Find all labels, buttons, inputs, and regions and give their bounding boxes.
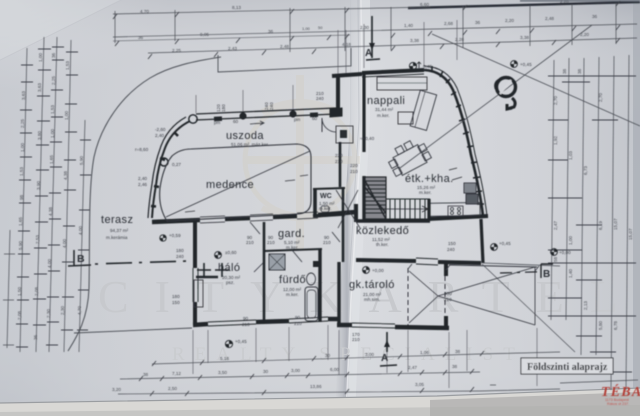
svg-text:3,38: 3,38 bbox=[520, 35, 529, 40]
svg-text:6,73: 6,73 bbox=[583, 166, 588, 175]
svg-text:2,13: 2,13 bbox=[583, 301, 588, 310]
svg-text:B: B bbox=[543, 269, 550, 280]
svg-text:1,65: 1,65 bbox=[18, 217, 23, 226]
svg-text:2,25: 2,25 bbox=[172, 48, 181, 53]
svg-text:1,00: 1,00 bbox=[20, 143, 25, 152]
svg-text:4,00: 4,00 bbox=[47, 259, 52, 268]
svg-text:1,53: 1,53 bbox=[50, 105, 55, 114]
svg-text:4,38: 4,38 bbox=[63, 171, 68, 180]
svg-text:gk.tároló: gk.tároló bbox=[349, 279, 395, 291]
svg-text:210: 210 bbox=[294, 321, 302, 326]
svg-text:4,70: 4,70 bbox=[77, 306, 82, 315]
svg-text:r=8,60: r=8,60 bbox=[135, 147, 149, 152]
svg-text:nappali: nappali bbox=[367, 95, 405, 107]
svg-text:30: 30 bbox=[263, 369, 269, 374]
svg-text:4,00: 4,00 bbox=[78, 226, 83, 235]
svg-text:medence: medence bbox=[206, 179, 254, 191]
svg-text:3,38: 3,38 bbox=[410, 38, 419, 43]
svg-text:50: 50 bbox=[318, 25, 323, 30]
svg-text:13,86: 13,86 bbox=[310, 384, 322, 389]
svg-text:240: 240 bbox=[269, 102, 274, 110]
svg-text:3,00: 3,00 bbox=[291, 368, 300, 373]
svg-text:38: 38 bbox=[577, 68, 582, 74]
svg-text:150: 150 bbox=[448, 241, 456, 246]
svg-text:1,00: 1,00 bbox=[38, 53, 43, 62]
svg-text:36: 36 bbox=[475, 20, 481, 25]
svg-text:3,90: 3,90 bbox=[36, 181, 41, 190]
svg-text:th.ker.: th.ker. bbox=[376, 242, 389, 247]
svg-text:240: 240 bbox=[447, 247, 455, 252]
svg-text:közlekedő: közlekedő bbox=[356, 225, 409, 237]
svg-text:1,00: 1,00 bbox=[64, 111, 69, 120]
svg-text:3,00: 3,00 bbox=[365, 352, 374, 357]
svg-text:2,47: 2,47 bbox=[408, 365, 417, 370]
svg-text:2,30: 2,30 bbox=[46, 309, 51, 318]
svg-text:2,53: 2,53 bbox=[35, 235, 40, 244]
svg-text:+0,59: +0,59 bbox=[169, 233, 181, 238]
svg-text:1,00: 1,00 bbox=[568, 236, 573, 245]
svg-text:31,44 m²: 31,44 m² bbox=[375, 107, 394, 112]
svg-text:98: 98 bbox=[19, 194, 24, 200]
svg-text:A: A bbox=[365, 48, 372, 59]
svg-text:36: 36 bbox=[138, 35, 144, 40]
svg-text:36: 36 bbox=[51, 52, 56, 58]
svg-text:210: 210 bbox=[323, 240, 331, 245]
svg-text:220: 220 bbox=[350, 163, 358, 168]
svg-text:300: 300 bbox=[444, 291, 452, 296]
svg-text:pm: pm bbox=[214, 120, 221, 125]
svg-text:38: 38 bbox=[455, 349, 461, 354]
svg-text:150: 150 bbox=[172, 300, 180, 305]
svg-text:psz.: psz. bbox=[226, 280, 234, 285]
svg-text:1,00: 1,00 bbox=[302, 26, 311, 31]
svg-text:1,00: 1,00 bbox=[50, 129, 55, 138]
svg-text:180: 180 bbox=[172, 294, 180, 299]
svg-text:210: 210 bbox=[352, 337, 360, 342]
svg-text:2,70: 2,70 bbox=[553, 96, 558, 105]
svg-text:2,08: 2,08 bbox=[34, 287, 39, 296]
svg-text:210: 210 bbox=[242, 322, 250, 327]
svg-text:Rákos út 237.: Rákos út 237. bbox=[607, 402, 629, 406]
svg-text:A: A bbox=[381, 353, 388, 364]
svg-text:0,27: 0,27 bbox=[172, 162, 181, 167]
svg-text:gard.: gard. bbox=[278, 228, 305, 240]
svg-text:1,50: 1,50 bbox=[17, 287, 22, 296]
svg-text:30: 30 bbox=[325, 353, 331, 358]
svg-text:WC: WC bbox=[320, 193, 332, 200]
svg-text:pin: pin bbox=[294, 117, 301, 122]
svg-text:38: 38 bbox=[562, 68, 567, 74]
svg-text:1,65: 1,65 bbox=[49, 155, 54, 164]
svg-text:+0,00: +0,00 bbox=[372, 268, 384, 273]
svg-text:4,18: 4,18 bbox=[342, 42, 351, 47]
svg-text:7,12: 7,12 bbox=[172, 371, 181, 376]
svg-text:3,80: 3,80 bbox=[37, 131, 42, 140]
svg-text:210: 210 bbox=[335, 159, 343, 164]
svg-text:210: 210 bbox=[267, 240, 275, 245]
svg-text:m.kerámia: m.kerámia bbox=[106, 235, 128, 240]
svg-text:≈+0,40: ≈+0,40 bbox=[360, 136, 375, 141]
svg-text:4,00: 4,00 bbox=[62, 239, 67, 248]
svg-text:-2,60: -2,60 bbox=[155, 127, 166, 132]
svg-text:Földszinti alaprajz: Földszinti alaprajz bbox=[527, 362, 608, 373]
svg-text:2,25: 2,25 bbox=[20, 119, 25, 128]
svg-text:1,40: 1,40 bbox=[568, 269, 573, 278]
svg-text:4,70: 4,70 bbox=[140, 9, 149, 14]
svg-text:4,38: 4,38 bbox=[48, 207, 53, 216]
svg-text:+0,00: +0,00 bbox=[559, 250, 571, 255]
svg-text:58: 58 bbox=[553, 256, 558, 262]
svg-text:90: 90 bbox=[295, 315, 301, 320]
svg-text:1,53: 1,53 bbox=[65, 61, 70, 70]
svg-text:5,90: 5,90 bbox=[79, 156, 84, 165]
svg-text:3,63: 3,63 bbox=[21, 91, 26, 100]
svg-text:3,63: 3,63 bbox=[37, 83, 42, 92]
svg-text:2,46: 2,46 bbox=[138, 182, 147, 187]
svg-text:2,70: 2,70 bbox=[598, 93, 603, 102]
svg-text:94,37 m²: 94,37 m² bbox=[110, 228, 129, 233]
svg-text:2,08: 2,08 bbox=[17, 311, 22, 320]
svg-text:38: 38 bbox=[452, 364, 458, 369]
svg-text:9,05: 9,05 bbox=[200, 32, 209, 37]
svg-text:36: 36 bbox=[268, 29, 274, 34]
svg-text:2,40: 2,40 bbox=[155, 133, 164, 138]
svg-text:2,20: 2,20 bbox=[505, 18, 514, 23]
svg-text:1,03: 1,03 bbox=[568, 151, 573, 160]
svg-text:5,90: 5,90 bbox=[18, 241, 23, 250]
svg-text:1,92: 1,92 bbox=[553, 136, 558, 145]
svg-text:180: 180 bbox=[221, 104, 226, 112]
svg-text:uszoda: uszoda bbox=[226, 130, 264, 142]
svg-text:90: 90 bbox=[243, 316, 249, 321]
svg-text:+0,45: +0,45 bbox=[499, 241, 511, 246]
svg-text:+0,45: +0,45 bbox=[235, 339, 247, 344]
svg-text:3,50: 3,50 bbox=[218, 370, 227, 375]
svg-text:5,80: 5,80 bbox=[598, 321, 603, 330]
svg-text:2,30: 2,30 bbox=[60, 306, 65, 315]
svg-text:2,48: 2,48 bbox=[545, 16, 554, 21]
svg-text:2,40: 2,40 bbox=[138, 176, 147, 181]
svg-text:±0,60: ±0,60 bbox=[225, 250, 237, 255]
svg-text:15,07: 15,07 bbox=[628, 228, 633, 240]
svg-text:1,53: 1,53 bbox=[19, 167, 24, 176]
svg-text:2,25: 2,25 bbox=[51, 76, 56, 85]
svg-text:15,07: 15,07 bbox=[613, 218, 618, 230]
svg-text:6,19: 6,19 bbox=[598, 221, 603, 230]
svg-text:m.ker.: m.ker. bbox=[286, 245, 299, 250]
svg-text:6,00: 6,00 bbox=[330, 367, 339, 372]
svg-text:210: 210 bbox=[350, 169, 358, 174]
svg-text:3,20: 3,20 bbox=[112, 387, 121, 392]
svg-text:6,78: 6,78 bbox=[613, 321, 618, 330]
svg-text:0,45: 0,45 bbox=[423, 64, 432, 69]
svg-text:5,18: 5,18 bbox=[220, 356, 229, 361]
svg-text:2,28: 2,28 bbox=[455, 37, 464, 42]
svg-text:mh.sim.: mh.sim. bbox=[364, 297, 380, 302]
svg-text:180: 180 bbox=[176, 248, 184, 253]
svg-text:étk.+kha.: étk.+kha. bbox=[405, 173, 454, 185]
svg-text:210: 210 bbox=[444, 297, 452, 302]
svg-text:2,43: 2,43 bbox=[228, 46, 237, 51]
svg-text:+0,45: +0,45 bbox=[520, 62, 532, 67]
svg-text:60: 60 bbox=[312, 116, 318, 121]
svg-text:6,60: 6,60 bbox=[420, 2, 429, 7]
svg-text:240: 240 bbox=[176, 254, 184, 259]
svg-text:38: 38 bbox=[143, 372, 149, 377]
svg-text:240: 240 bbox=[316, 96, 324, 101]
svg-text:m.ker.: m.ker. bbox=[419, 190, 432, 195]
svg-text:B: B bbox=[77, 253, 85, 265]
svg-text:2,30: 2,30 bbox=[360, 25, 369, 30]
svg-text:2,50: 2,50 bbox=[168, 386, 177, 391]
svg-text:fürdő: fürdő bbox=[279, 274, 306, 286]
svg-text:2,68: 2,68 bbox=[444, 21, 453, 26]
svg-text:36: 36 bbox=[592, 14, 598, 19]
svg-text:220: 220 bbox=[335, 153, 343, 158]
svg-text:8,13: 8,13 bbox=[232, 5, 241, 10]
svg-text:1,40: 1,40 bbox=[404, 23, 413, 28]
svg-text:2,47: 2,47 bbox=[553, 221, 558, 230]
svg-text:60: 60 bbox=[233, 119, 239, 124]
svg-text:m.ker.: m.ker. bbox=[377, 113, 390, 118]
svg-text:2,20: 2,20 bbox=[560, 0, 569, 4]
svg-text:3,05: 3,05 bbox=[415, 382, 424, 387]
svg-text:1,06: 1,06 bbox=[420, 350, 429, 355]
svg-text:210: 210 bbox=[246, 240, 254, 245]
svg-text:terasz: terasz bbox=[101, 214, 133, 226]
svg-text:36: 36 bbox=[33, 334, 38, 340]
svg-text:m.ker.: m.ker. bbox=[286, 292, 299, 297]
svg-text:2,48: 2,48 bbox=[280, 44, 289, 49]
